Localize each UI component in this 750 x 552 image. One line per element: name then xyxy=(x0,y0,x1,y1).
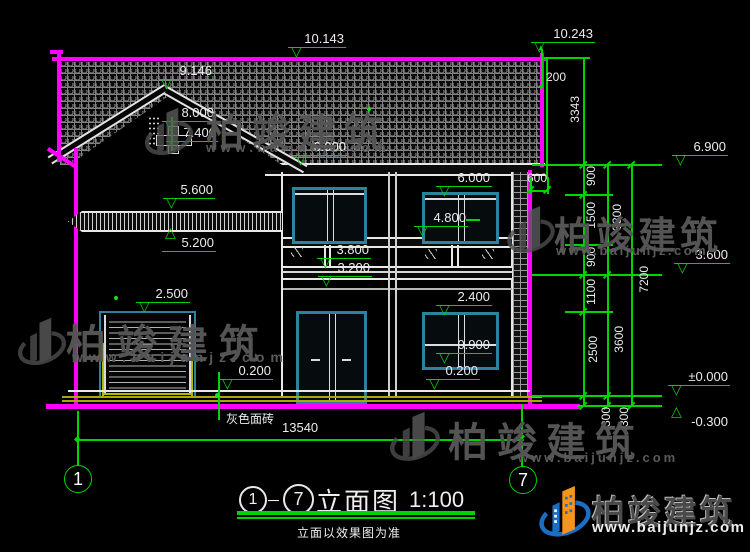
dim-value: 2500 xyxy=(587,336,600,363)
axis-number: 1 xyxy=(249,491,258,509)
level-triangle-icon: ▽ xyxy=(417,224,428,236)
brand-url: www.baijunjz.com xyxy=(592,519,745,536)
glass-hatch-mark xyxy=(482,249,494,259)
level-marker: 6.000 ▽ xyxy=(436,171,492,187)
railing-post xyxy=(451,245,453,267)
watermark-url: www.baijunjz.com xyxy=(518,450,678,465)
axis-bubble-1: 1 xyxy=(64,465,92,493)
title-dash: － xyxy=(266,490,281,511)
level-triangle-icon: ▽ xyxy=(321,274,332,286)
axis-bubble-7: 7 xyxy=(509,466,537,494)
glass-hatch-mark xyxy=(425,249,437,259)
drawing-scale: 1:100 xyxy=(409,487,464,513)
material-label: 灰色面砖 xyxy=(226,412,274,426)
title-underline-thick xyxy=(237,511,475,515)
axis-number: 7 xyxy=(518,470,528,491)
dim-terminator xyxy=(74,436,81,443)
level-triangle-icon: ▽ xyxy=(139,300,150,312)
pavement-line-1 xyxy=(62,396,542,398)
level-triangle-icon: ▽ xyxy=(439,184,450,196)
leader-dot xyxy=(215,393,220,398)
arrow-down-icon: ▼ xyxy=(537,84,545,92)
level-marker: 0.200 ▽ xyxy=(426,364,480,380)
dim-value: 3343 xyxy=(569,96,582,123)
level-triangle-icon: ▽ xyxy=(222,377,233,389)
level-marker: 3.800 ▽ xyxy=(317,243,371,259)
extension-line xyxy=(565,311,613,313)
arrow-up-icon: ▲ xyxy=(537,44,545,52)
level-marker: △ 5.200 xyxy=(162,226,216,252)
brand-logo-icon xyxy=(538,484,592,542)
level-line xyxy=(162,251,216,252)
level-marker: 5.600 ▽ xyxy=(163,183,215,199)
level-triangle-icon: ▽ xyxy=(675,153,686,165)
level-marker: △ -0.300 xyxy=(668,405,730,430)
watermark-url: www.baijunjz.com xyxy=(72,349,289,365)
level-marker: 2.400 ▽ xyxy=(436,290,492,306)
window-mullion xyxy=(327,190,334,241)
watermark-logo-icon xyxy=(388,410,442,466)
downpipe xyxy=(388,172,397,397)
dim-value: 1100 xyxy=(585,279,598,305)
dim-value: 3600 xyxy=(613,326,626,353)
door-handle xyxy=(311,359,320,361)
dim-value: 200 xyxy=(546,70,566,84)
dim-value: 900 xyxy=(585,166,598,186)
level-marker: ±0.000 ▽ xyxy=(668,370,730,386)
watermark-logo-icon xyxy=(16,316,68,370)
aux-green-dash xyxy=(466,219,480,221)
watermark-url: www.baijunjz.com xyxy=(206,140,390,155)
level-triangle-icon: ▽ xyxy=(439,303,450,315)
garage-sill-yellow xyxy=(102,393,193,395)
level-marker: 3.200 ▽ xyxy=(318,261,372,277)
level-triangle-icon: ▽ xyxy=(671,383,682,395)
door-center-divider xyxy=(329,314,336,401)
extension-line xyxy=(565,194,613,196)
level-marker: 9.146 ▽ xyxy=(158,64,214,80)
level-marker: 2.500 ▽ xyxy=(136,287,190,303)
extension-line xyxy=(532,395,662,397)
dim-value: 7200 xyxy=(638,266,651,293)
window-2f-left xyxy=(292,187,367,244)
plinth-line xyxy=(68,390,530,392)
ground-line xyxy=(46,404,580,409)
elevation-drawing: 10.143 ▽ 10.243 ▽ 9.146 ▽ 8.000 ▽ 7.400 … xyxy=(0,0,750,552)
watermark-logo-icon xyxy=(142,106,196,160)
dim-chain-line-mid xyxy=(607,164,609,407)
title-note: 立面以效果图为准 xyxy=(297,524,401,541)
title-underline-thin xyxy=(237,517,475,519)
level-marker: 6.900 ▽ xyxy=(672,140,728,156)
dim-chain-line-outer xyxy=(631,164,633,407)
snap-dot xyxy=(114,296,118,300)
level-triangle-icon: ▽ xyxy=(439,351,450,363)
axis-number: 1 xyxy=(73,469,83,490)
pavement-line-2 xyxy=(62,400,542,402)
level-marker: 10.143 ▽ xyxy=(288,32,346,48)
level-triangle-icon: ▽ xyxy=(429,377,440,389)
dim-value: 13540 xyxy=(282,421,318,435)
level-marker: 4.800 ▽ xyxy=(414,211,468,227)
glass-hatch-mark xyxy=(291,247,303,257)
level-marker: 10.243 ▽ xyxy=(531,27,595,43)
level-triangle-icon: ▽ xyxy=(161,77,172,89)
watermark-logo-icon xyxy=(506,204,556,258)
watermark-url: www.baijunjz.com xyxy=(556,243,708,258)
level-marker: 0.900 ▽ xyxy=(436,338,492,354)
roof-left-edge xyxy=(57,50,61,162)
level-triangle-icon: ▽ xyxy=(677,261,688,273)
door-handle xyxy=(342,359,351,361)
level-triangle-icon: ▽ xyxy=(291,45,302,57)
axis-number: 7 xyxy=(293,489,303,510)
title-axis-bubble-from: 1 xyxy=(239,486,267,514)
level-triangle-icon: ▽ xyxy=(166,196,177,208)
railing-post xyxy=(457,245,459,267)
